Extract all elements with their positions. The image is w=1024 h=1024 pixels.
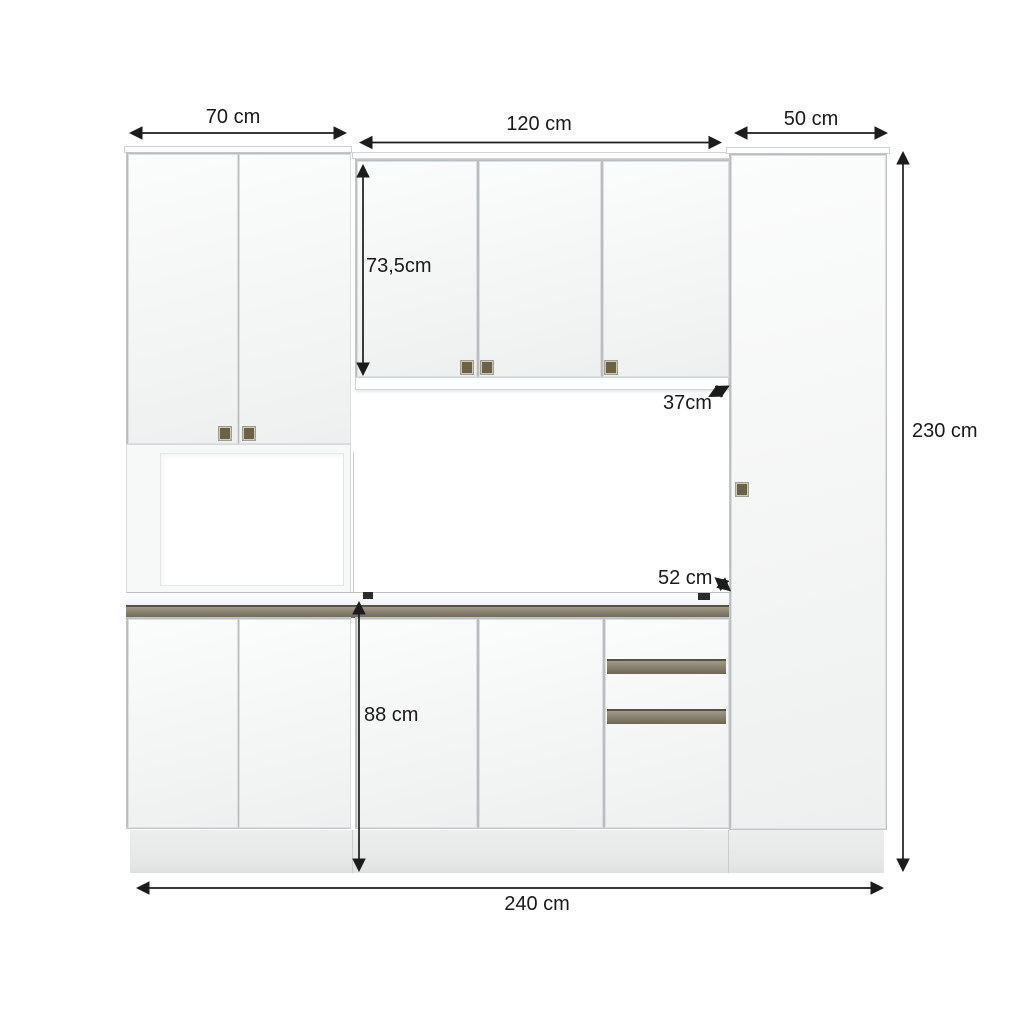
drawer-handle-strip-top: [607, 659, 726, 674]
right-tall-cabinet: [729, 153, 887, 830]
dim-label-counter-depth: 52 cm: [658, 567, 712, 590]
left-niche-frame: [126, 444, 351, 605]
left-niche-opening: [160, 453, 344, 586]
left-upper-handle-left: [219, 427, 231, 440]
middle-wall-door-2: [479, 161, 601, 377]
dim-label-wall-height: 73,5cm: [366, 255, 432, 278]
left-unit-side-panel-edge: [353, 452, 354, 592]
left-upper-handle-right: [243, 427, 255, 440]
middle-wall-handle-3: [605, 361, 617, 374]
plinth-joint-left: [352, 830, 353, 873]
middle-wall-handle-2: [481, 361, 493, 374]
dim-label-left-width: 70 cm: [206, 106, 260, 129]
plinth: [130, 830, 884, 873]
left-base-cabinet: [126, 617, 351, 829]
left-upper-cabinet: [126, 152, 351, 444]
middle-base-door-right: [479, 619, 603, 828]
counter-joint-shadow-left: [363, 592, 373, 599]
dim-label-wall-depth: 37cm: [663, 392, 712, 415]
left-base-door-right: [239, 619, 351, 828]
middle-wall-cabinet-bottom-shelf: [355, 377, 729, 390]
dim-label-total-height: 230 cm: [912, 420, 978, 443]
dim-label-total-width: 240 cm: [504, 893, 570, 916]
plinth-joint-right: [728, 830, 729, 873]
dim-label-base-height: 88 cm: [364, 704, 418, 727]
middle-wall-door-3: [603, 161, 729, 377]
left-upper-door-right: [239, 154, 351, 444]
dim-line-counter-depth: [716, 579, 730, 591]
middle-wall-handle-1: [461, 361, 473, 374]
kitchen-dimension-diagram: 70 cm 120 cm 50 cm 73,5cm 37cm 230 cm 52…: [0, 0, 1024, 1024]
counter-joint-shadow-right: [698, 593, 710, 600]
right-tall-handle: [736, 483, 748, 496]
middle-cabinet-top-panel: [352, 152, 731, 159]
right-tall-door: [731, 155, 886, 829]
dim-label-right-width: 50 cm: [784, 108, 838, 131]
drawer-handle-strip-bottom: [607, 709, 726, 724]
left-base-door-left: [128, 619, 238, 828]
dim-label-middle-width: 120 cm: [506, 113, 572, 136]
left-upper-door-left: [128, 154, 238, 444]
countertop-surface: [126, 592, 729, 605]
